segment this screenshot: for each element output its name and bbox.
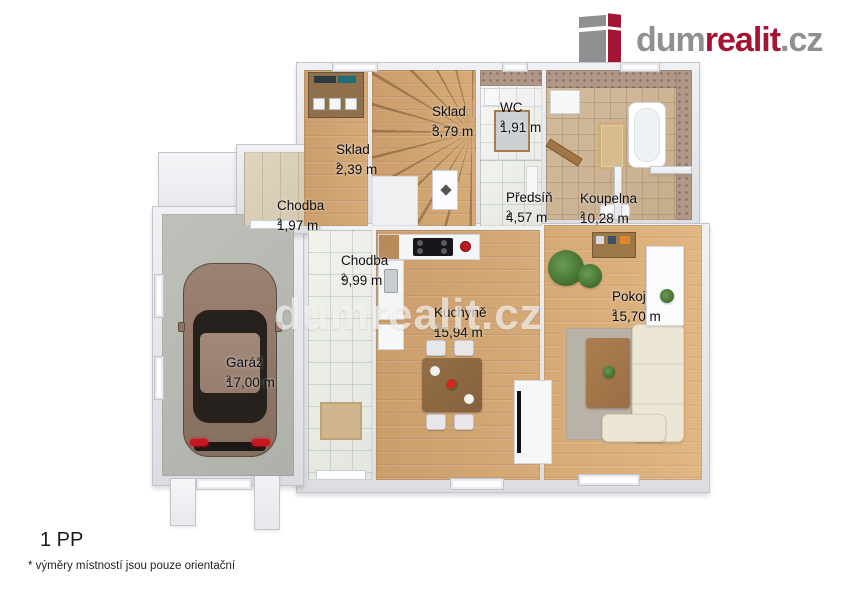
room-area: 2,39 m	[336, 160, 377, 180]
logo-cap-gray	[579, 15, 606, 28]
dining-chair	[454, 414, 474, 430]
plate	[464, 394, 474, 404]
room-area: 15,70 m	[612, 307, 661, 327]
wc-tiled-wall	[480, 70, 542, 86]
floor-level-label: 1 PP	[40, 529, 83, 552]
room-area-sup: 2	[506, 208, 511, 222]
room-name: Garáž	[226, 353, 263, 373]
room-area-sup: 2	[580, 209, 585, 223]
room-name: WC	[500, 98, 523, 118]
entrance-door	[316, 470, 366, 480]
car-mirror-right	[275, 322, 282, 332]
bathroom-tiled-wall-top	[546, 70, 692, 88]
room-area: 10,28 m	[580, 209, 629, 229]
window-bottom-pokoj	[578, 474, 640, 486]
floor-plant-small	[578, 264, 602, 288]
tv-screen	[517, 391, 521, 453]
driveway-pier-left	[170, 478, 196, 526]
floor-plan: Sklad 2,39 m2 Sklad 3,79 m2 WC 1,91 m2 C…	[150, 58, 712, 528]
room-area-sup: 2	[432, 122, 437, 136]
room-area: 15,94 m	[434, 323, 483, 343]
window-garage-left-2	[154, 356, 164, 400]
sofa-chaise	[602, 414, 666, 442]
room-name: Koupelna	[580, 189, 637, 209]
floorplan-page: dumrealit.cz	[0, 0, 848, 600]
dining-table	[422, 358, 482, 412]
toilet	[484, 88, 500, 106]
room-area: 9,99 m	[341, 271, 382, 291]
shelf-item	[596, 236, 604, 244]
doormat	[320, 402, 362, 440]
sofa-cushion-line	[633, 363, 683, 365]
storage-box	[329, 98, 341, 110]
tv-cabinet	[514, 380, 552, 464]
red-pot	[460, 241, 471, 252]
bookshelf	[592, 232, 636, 258]
window-top-bathroom	[620, 62, 660, 72]
brand-cz: .cz	[780, 21, 822, 59]
storage-box	[345, 98, 357, 110]
brand-realit: realit	[705, 21, 780, 59]
plate	[430, 366, 440, 376]
storage-shelves	[308, 72, 364, 118]
stairs-landing	[372, 176, 418, 226]
car-mirror-left	[178, 322, 185, 332]
kitchen-sink	[384, 269, 398, 293]
room-area-sup: 2	[341, 271, 346, 285]
coffee-table	[586, 338, 630, 408]
window-top-wc	[502, 62, 528, 72]
door-ornament	[440, 184, 451, 195]
room-area-sup: 2	[336, 160, 341, 174]
bathtub-basin	[634, 108, 660, 162]
burner	[441, 248, 447, 254]
room-area: 3,79 m	[432, 122, 473, 142]
room-area-sup: 2	[277, 216, 282, 230]
burner	[417, 240, 423, 246]
shelf-item	[620, 236, 630, 244]
logo-cap-red	[608, 13, 621, 28]
staircase	[372, 70, 476, 226]
burner	[417, 248, 423, 254]
room-name: Sklad	[432, 102, 466, 122]
room-area: 4,57 m	[506, 208, 547, 228]
window-bottom-kitchen	[450, 478, 504, 490]
room-name: Předsíň	[506, 188, 553, 208]
washing-machine	[550, 90, 580, 114]
car-taillight-right	[252, 439, 270, 446]
room-area-sup: 2	[612, 307, 617, 321]
garage-door-opening	[196, 478, 252, 490]
dining-chair	[426, 414, 446, 430]
bathtub	[628, 102, 666, 168]
table-flowers	[446, 379, 458, 391]
room-name: Chodba	[341, 251, 388, 271]
fridge	[378, 324, 404, 350]
brand-wordmark: dumrealit.cz	[636, 23, 822, 57]
room-area: 1,91 m	[500, 118, 541, 138]
kitchen-counter	[378, 234, 480, 260]
room-area-sup: 2	[226, 373, 231, 387]
entry-porch-wall	[158, 152, 242, 210]
table-plant	[603, 366, 615, 378]
bath-rug	[598, 122, 626, 170]
bathroom-partition-2	[650, 166, 692, 174]
stairs-door	[432, 170, 458, 210]
shelf-item	[608, 236, 616, 244]
room-name: Kuchyně	[434, 303, 487, 323]
cooktop	[413, 238, 453, 256]
room-area-sup: 2	[434, 323, 439, 337]
storage-item	[314, 76, 336, 83]
room-name: Chodba	[277, 196, 324, 216]
burner	[441, 240, 447, 246]
room-area: 1,97 m	[277, 216, 318, 236]
car-taillight-left	[190, 439, 208, 446]
sofa-cushion-line	[633, 403, 683, 405]
room-name: Pokoj	[612, 287, 646, 307]
storage-item	[338, 76, 356, 83]
sideboard-plant	[660, 289, 674, 303]
room-area-sup: 2	[500, 118, 505, 132]
disclaimer-note: * výměry místností jsou pouze orientační	[28, 560, 235, 572]
bathroom-tiled-wall-right	[676, 70, 692, 220]
brand-dum: dum	[636, 21, 705, 59]
window-garage-left-1	[154, 274, 164, 318]
room-name: Sklad	[336, 140, 370, 160]
storage-box	[313, 98, 325, 110]
room-area: 17,00 m	[226, 373, 275, 393]
